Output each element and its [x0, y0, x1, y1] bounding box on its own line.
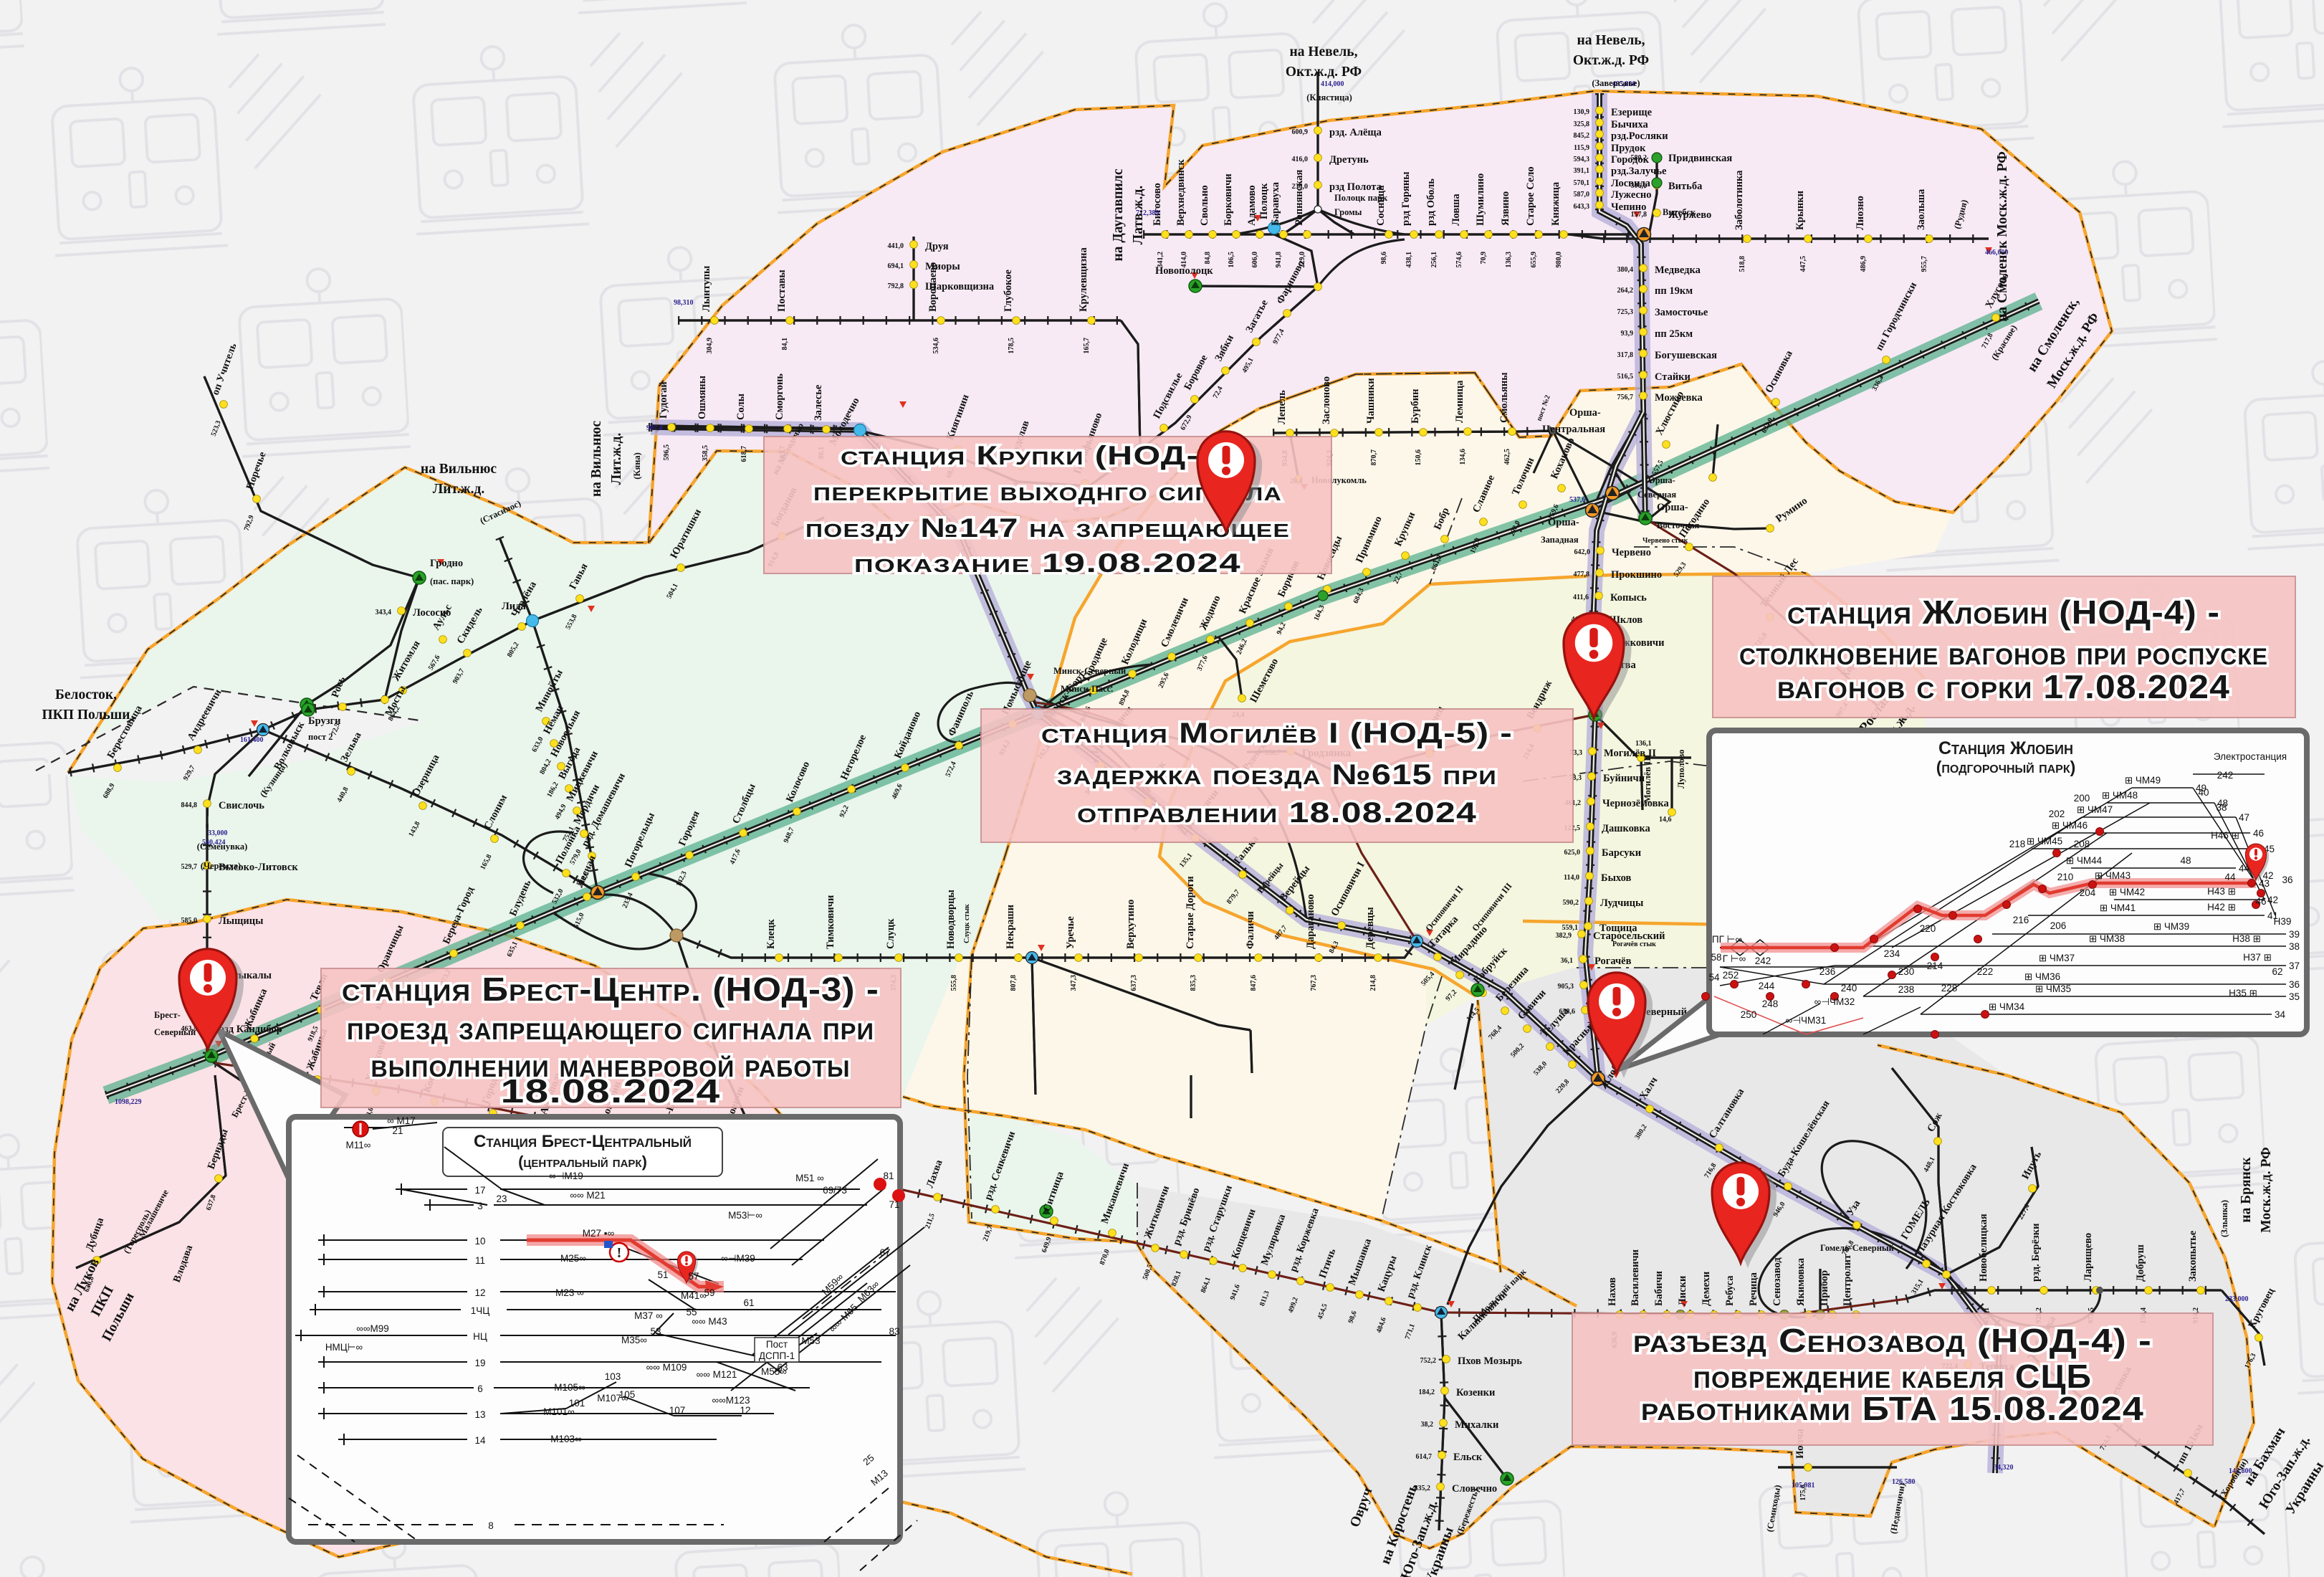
svg-text:Слуцк стык: Слуцк стык: [963, 904, 971, 943]
svg-text:Шумилино: Шумилино: [1475, 173, 1486, 226]
svg-text:Лида: Лида: [502, 601, 526, 612]
svg-text:Орша-: Орша-: [1657, 502, 1688, 513]
svg-text:М103∞: М103∞: [550, 1434, 582, 1444]
svg-text:42: 42: [2262, 870, 2273, 881]
svg-text:Н35 ⊞: Н35 ⊞: [2229, 988, 2257, 999]
svg-text:(Семенувка): (Семенувка): [197, 842, 248, 852]
svg-text:Станция Брест-Центральный: Станция Брест-Центральный: [474, 1132, 692, 1151]
svg-text:Новополоцк: Новополоцк: [1155, 265, 1213, 277]
svg-text:НЦ: НЦ: [473, 1331, 487, 1342]
svg-text:Крынки: Крынки: [1794, 191, 1806, 230]
svg-text:Орша-: Орша-: [1648, 475, 1675, 485]
svg-text:222: 222: [1977, 966, 1994, 977]
svg-text:Чепино: Чепино: [1611, 201, 1646, 213]
svg-text:136,1: 136,1: [1635, 740, 1652, 748]
svg-text:Заслоново: Заслоново: [1321, 376, 1332, 424]
svg-text:Княжица: Княжица: [1550, 181, 1562, 226]
svg-text:462,5: 462,5: [1503, 449, 1511, 465]
svg-text:Язвино: Язвино: [1500, 191, 1511, 226]
svg-text:12: 12: [740, 1405, 750, 1416]
svg-text:М105∞: М105∞: [554, 1382, 585, 1393]
svg-text:НМЦ⊢∞: НМЦ⊢∞: [325, 1342, 363, 1353]
svg-text:Сморгонь: Сморгонь: [774, 373, 785, 420]
svg-text:Червено: Червено: [1612, 547, 1651, 558]
svg-text:Прибор: Прибор: [1819, 1270, 1830, 1306]
svg-text:Козенки: Козенки: [1456, 1387, 1495, 1399]
svg-text:19: 19: [474, 1358, 485, 1368]
svg-text:33,000: 33,000: [208, 829, 228, 837]
svg-text:Н37 ⊞: Н37 ⊞: [2243, 952, 2272, 963]
svg-text:Якимовка: Якимовка: [1795, 1257, 1807, 1306]
svg-text:Верхнедвинск: Верхнедвинск: [1175, 159, 1187, 226]
svg-text:Адамово: Адамово: [1246, 185, 1258, 226]
svg-text:38: 38: [2216, 802, 2227, 813]
svg-text:Лыщицы: Лыщицы: [219, 915, 263, 927]
svg-text:Крулевщизна: Крулевщизна: [1078, 247, 1089, 312]
svg-text:работниками БТА 15.08.2024: работниками БТА 15.08.2024: [1641, 1390, 2144, 1427]
svg-text:447,5: 447,5: [1799, 256, 1807, 272]
svg-text:Старое Село: Старое Село: [1525, 166, 1536, 226]
svg-text:54: 54: [1708, 972, 1720, 983]
svg-text:ПГ ⊢∞: ПГ ⊢∞: [1712, 934, 1743, 945]
svg-text:Лужесно: Лужесно: [1611, 189, 1651, 201]
svg-text:130,9: 130,9: [1574, 108, 1590, 116]
svg-text:Бурбин: Бурбин: [1410, 389, 1421, 424]
svg-text:Заольша: Заольша: [1916, 189, 1927, 230]
svg-text:Пхов Мозырь: Пхов Мозырь: [1458, 1356, 1522, 1367]
svg-text:Лит.ж.д.: Лит.ж.д.: [433, 482, 485, 497]
svg-text:Лынтупы: Лынтупы: [701, 266, 712, 312]
svg-text:⊞ ЧМ43: ⊞ ЧМ43: [2095, 870, 2131, 881]
svg-text:Гомель-Северный: Гомель-Северный: [1820, 1243, 1894, 1253]
svg-text:101: 101: [569, 1398, 585, 1409]
svg-text:Окт.ж.д. РФ: Окт.ж.д. РФ: [1286, 65, 1362, 80]
svg-text:600,9: 600,9: [1292, 128, 1309, 136]
svg-text:44: 44: [2224, 872, 2236, 882]
svg-text:234: 234: [1884, 948, 1900, 959]
svg-text:35: 35: [2289, 991, 2300, 1002]
svg-text:38: 38: [2289, 941, 2300, 952]
svg-text:Барсуки: Барсуки: [1602, 847, 1641, 859]
svg-text:Смольяны: Смольяны: [1498, 372, 1510, 423]
svg-text:380,4: 380,4: [1617, 266, 1634, 274]
svg-text:Н42 ⊞: Н42 ⊞: [2207, 902, 2236, 913]
svg-text:М51 ∞: М51 ∞: [795, 1173, 824, 1183]
svg-text:Медведка: Медведка: [1655, 265, 1701, 276]
svg-text:Михалки: Михалки: [1455, 1419, 1498, 1431]
svg-text:905,3: 905,3: [1558, 983, 1574, 991]
svg-text:Баравуха: Баравуха: [1270, 181, 1281, 226]
svg-text:Луполово: Луполово: [1676, 750, 1686, 788]
svg-text:рзд. Берёзки: рзд. Берёзки: [2030, 1224, 2042, 1282]
svg-text:555,8: 555,8: [950, 975, 958, 991]
svg-text:Бычиха: Бычиха: [1611, 119, 1648, 130]
svg-text:570,1: 570,1: [1574, 179, 1590, 187]
svg-text:244: 244: [1759, 981, 1775, 991]
svg-text:574,6: 574,6: [1455, 252, 1463, 268]
svg-text:Орша-: Орша-: [1548, 517, 1579, 528]
svg-text:рзд.Росляки: рзд.Росляки: [1611, 130, 1668, 142]
svg-text:пост 2: пост 2: [308, 732, 333, 742]
svg-text:Окт.ж.д. РФ: Окт.ж.д. РФ: [1573, 53, 1649, 68]
svg-text:Городок: Городок: [1611, 154, 1650, 166]
svg-text:ПКП Польши: ПКП Польши: [42, 707, 130, 723]
svg-text:∞∞ М109: ∞∞ М109: [646, 1362, 687, 1373]
svg-text:67: 67: [879, 1247, 890, 1258]
svg-text:Г ⊢∞: Г ⊢∞: [1723, 953, 1746, 964]
svg-text:585,0: 585,0: [181, 917, 198, 925]
svg-text:606,0: 606,0: [1251, 252, 1259, 268]
svg-text:23: 23: [496, 1194, 507, 1204]
svg-text:643,3: 643,3: [1574, 203, 1590, 211]
svg-text:844,8: 844,8: [181, 801, 198, 809]
svg-text:Рогачёв: Рогачёв: [1594, 956, 1632, 967]
svg-text:59: 59: [704, 1287, 714, 1298]
svg-text:Электростанция: Электростанция: [2214, 751, 2287, 762]
svg-text:625,0: 625,0: [1564, 849, 1581, 857]
svg-text:230: 230: [1898, 966, 1915, 977]
svg-text:534,6: 534,6: [932, 338, 940, 354]
svg-text:⊞ ЧМ39: ⊞ ЧМ39: [2153, 921, 2189, 932]
svg-text:Шарковщизна: Шарковщизна: [925, 281, 995, 292]
svg-text:рзд Горяны: рзд Горяны: [1400, 171, 1412, 226]
svg-text:Н39: Н39: [2274, 916, 2292, 927]
svg-text:Восточная: Восточная: [1657, 520, 1700, 530]
svg-text:Прокшино: Прокшино: [1611, 569, 1662, 581]
svg-text:∞∞ М121: ∞∞ М121: [697, 1369, 737, 1380]
svg-text:58: 58: [1711, 952, 1721, 963]
svg-text:252: 252: [1723, 970, 1739, 981]
svg-text:200: 200: [2074, 793, 2090, 804]
svg-text:Глубокое: Глубокое: [1003, 269, 1014, 312]
svg-text:150,6: 150,6: [1415, 449, 1422, 466]
svg-text:46: 46: [2255, 896, 2266, 907]
svg-text:станция Крупки (НОД-1) -: станция Крупки (НОД-1) -: [841, 441, 1255, 470]
svg-text:Могилёв III: Могилёв III: [1642, 754, 1653, 803]
svg-text:3: 3: [477, 1201, 483, 1211]
svg-text:Дараганово: Дараганово: [1305, 894, 1316, 949]
svg-text:Новодворцы: Новодворцы: [945, 890, 957, 949]
svg-text:Василевичи: Василевичи: [1630, 1249, 1641, 1306]
svg-text:13: 13: [474, 1409, 485, 1420]
svg-text:Свислочь: Свислочь: [219, 800, 264, 811]
svg-text:220: 220: [1920, 923, 1936, 934]
svg-text:рзд.Залучье: рзд.Залучье: [1611, 166, 1667, 177]
svg-text:Буйничи: Буйничи: [1603, 773, 1645, 784]
svg-text:Орша-: Орша-: [1569, 407, 1601, 419]
svg-text:Северный: Северный: [154, 1027, 196, 1037]
svg-text:⊞ ЧМ42: ⊞ ЧМ42: [2109, 887, 2145, 897]
svg-text:Н38 ⊞: Н38 ⊞: [2232, 933, 2261, 944]
svg-text:34,320: 34,320: [1994, 1464, 2014, 1472]
svg-text:907,4: 907,4: [646, 424, 663, 432]
svg-text:34: 34: [2275, 1009, 2286, 1020]
svg-text:М41∞: М41∞: [681, 1290, 707, 1301]
svg-text:70,9: 70,9: [1480, 252, 1488, 265]
svg-text:242: 242: [2217, 770, 2234, 781]
svg-text:Ларищево: Ларищево: [2082, 1233, 2094, 1282]
svg-text:М37 ∞: М37 ∞: [634, 1310, 663, 1321]
svg-text:391,1: 391,1: [1574, 167, 1590, 175]
svg-text:∞∞М99: ∞∞М99: [356, 1323, 389, 1334]
svg-text:Червено стык: Червено стык: [1642, 537, 1688, 545]
svg-text:М53⊢∞: М53⊢∞: [728, 1210, 762, 1221]
svg-text:⊞ ЧМ44: ⊞ ЧМ44: [2066, 855, 2103, 866]
svg-text:590,2: 590,2: [1563, 899, 1579, 907]
svg-text:Лудчицы: Лудчицы: [1600, 897, 1643, 909]
svg-text:Друя: Друя: [925, 241, 949, 252]
svg-text:587,0: 587,0: [1574, 191, 1590, 199]
svg-text:Латв.ж.д.: Латв.ж.д.: [1131, 186, 1146, 245]
svg-text:537,6: 537,6: [1569, 496, 1586, 504]
svg-text:36: 36: [2289, 979, 2300, 990]
svg-text:Центролит: Центролит: [1842, 1254, 1853, 1306]
svg-text:Закопытье: Закопытье: [2187, 1230, 2199, 1282]
svg-text:845,2: 845,2: [1574, 132, 1590, 140]
svg-text:325,8: 325,8: [1574, 120, 1590, 128]
svg-text:233,000: 233,000: [2225, 1295, 2249, 1303]
svg-text:Новобелицкая: Новобелицкая: [1978, 1214, 1989, 1282]
svg-text:242: 242: [1755, 956, 1771, 966]
svg-text:(центральный парк): (центральный парк): [518, 1153, 647, 1171]
svg-text:ДСПП-1: ДСПП-1: [759, 1350, 795, 1361]
svg-text:Пост: Пост: [766, 1339, 788, 1350]
svg-text:⊞ ЧМ41: ⊞ ЧМ41: [2100, 902, 2136, 913]
svg-text:37: 37: [2289, 961, 2300, 971]
svg-text:∞⊣ЧМ32: ∞⊣ЧМ32: [1814, 996, 1855, 1007]
svg-text:161,400: 161,400: [240, 736, 264, 744]
svg-text:618,7: 618,7: [740, 446, 748, 462]
svg-text:317,8: 317,8: [1617, 351, 1634, 359]
svg-text:725,3: 725,3: [1617, 308, 1634, 316]
svg-text:17: 17: [474, 1185, 485, 1196]
svg-text:411,6: 411,6: [1573, 594, 1589, 601]
svg-text:238: 238: [1898, 984, 1915, 995]
svg-text:184,2: 184,2: [1419, 1388, 1435, 1396]
svg-text:∞∞М123: ∞∞М123: [712, 1395, 750, 1406]
svg-text:438,1: 438,1: [1405, 252, 1413, 268]
svg-text:53: 53: [650, 1326, 661, 1337]
svg-text:на Невель,: на Невель,: [1290, 44, 1358, 59]
svg-text:46: 46: [2253, 828, 2264, 839]
svg-text:178,5: 178,5: [1008, 338, 1015, 354]
svg-text:756,7: 756,7: [1617, 394, 1634, 401]
svg-text:358,5: 358,5: [702, 445, 709, 462]
svg-text:18.08.2024: 18.08.2024: [501, 1072, 721, 1110]
svg-text:Нахов: Нахов: [1607, 1277, 1618, 1306]
svg-text:Сенозавод: Сенозавод: [1771, 1257, 1783, 1306]
svg-text:на Вильнюс: на Вильнюс: [589, 421, 604, 497]
svg-text:93,9: 93,9: [1621, 330, 1634, 338]
svg-text:⊞ ЧМ36: ⊞ ЧМ36: [2024, 971, 2060, 982]
svg-text:Витебск: Витебск: [1663, 207, 1696, 217]
svg-text:М25∞: М25∞: [560, 1253, 586, 1264]
svg-text:Демехи: Демехи: [1701, 1272, 1712, 1306]
svg-text:(Злынка): (Злынка): [2219, 1200, 2229, 1237]
svg-text:∞∞ М43: ∞∞ М43: [692, 1316, 727, 1327]
svg-text:Уречье: Уречье: [1065, 916, 1076, 949]
svg-text:40: 40: [2198, 787, 2209, 798]
svg-text:Слуцк: Слуцк: [885, 918, 896, 949]
svg-text:задержка поезда №615 при: задержка поезда №615 при: [1057, 759, 1497, 791]
svg-text:248: 248: [1762, 999, 1779, 1009]
svg-text:Замосточье: Замосточье: [1655, 307, 1708, 318]
svg-text:Северная: Северная: [1637, 490, 1676, 500]
svg-text:⊞ ЧМ47: ⊞ ЧМ47: [2077, 804, 2113, 815]
svg-text:57: 57: [688, 1271, 699, 1282]
svg-text:214,8: 214,8: [1369, 975, 1377, 991]
svg-text:47: 47: [2239, 812, 2249, 823]
svg-text:пп 19км: пп 19км: [1655, 285, 1693, 297]
svg-text:отправлении 18.08.2024: отправлении 18.08.2024: [1077, 797, 1477, 829]
svg-text:Тимковичи: Тимковичи: [825, 895, 836, 949]
svg-text:Деревцы: Деревцы: [1364, 907, 1376, 949]
svg-text:84,1: 84,1: [781, 338, 789, 351]
svg-text:Борковичи: Борковичи: [1223, 173, 1234, 226]
svg-text:Солы: Солы: [735, 394, 747, 420]
svg-text:Миоры: Миоры: [925, 261, 960, 272]
svg-text:210: 210: [2057, 872, 2074, 882]
svg-text:136,3: 136,3: [1505, 252, 1513, 268]
svg-text:214: 214: [1927, 961, 1943, 971]
svg-text:Лиозно: Лиозно: [1855, 196, 1866, 230]
svg-text:216: 216: [2013, 915, 2029, 925]
svg-text:103: 103: [605, 1371, 621, 1382]
svg-text:Чернозёмовка: Чернозёмовка: [1602, 798, 1670, 809]
svg-text:Старые Дороги: Старые Дороги: [1185, 876, 1196, 949]
svg-text:Богушевская: Богушевская: [1655, 350, 1717, 361]
svg-text:⊞ ЧМ46: ⊞ ЧМ46: [2052, 820, 2088, 831]
svg-text:Свольно: Свольно: [1199, 185, 1210, 226]
svg-text:637,3: 637,3: [1130, 975, 1138, 991]
svg-text:204: 204: [2080, 887, 2096, 898]
svg-text:518,8: 518,8: [1739, 256, 1746, 272]
svg-text:62: 62: [2272, 966, 2282, 977]
svg-text:Лосвида: Лосвида: [1611, 178, 1651, 189]
svg-text:792,8: 792,8: [888, 282, 904, 290]
svg-text:Моск.ж.д. РФ: Моск.ж.д. РФ: [2259, 1147, 2274, 1233]
svg-text:106,5: 106,5: [1228, 252, 1235, 268]
svg-text:14: 14: [474, 1435, 486, 1446]
svg-text:264,2: 264,2: [1617, 287, 1634, 295]
svg-text:71: 71: [889, 1199, 899, 1210]
svg-text:36,1: 36,1: [1561, 957, 1574, 965]
svg-text:Лемница: Лемница: [1454, 380, 1465, 423]
svg-text:М11∞: М11∞: [346, 1140, 371, 1150]
svg-text:⊞ ЧМ45: ⊞ ЧМ45: [2027, 836, 2062, 847]
svg-text:Полоцк: Полоцк: [1258, 183, 1270, 219]
svg-text:414,000: 414,000: [1321, 80, 1344, 88]
svg-text:Езерище: Езерище: [1611, 107, 1653, 118]
svg-text:529,7: 529,7: [181, 863, 198, 871]
svg-text:М35∞: М35∞: [621, 1335, 647, 1345]
svg-text:∞∞ М21: ∞∞ М21: [570, 1190, 605, 1201]
svg-text:1ЧЦ: 1ЧЦ: [471, 1305, 490, 1316]
svg-text:станция Могилёв I (НОД-5) -: станция Могилёв I (НОД-5) -: [1041, 718, 1513, 749]
svg-text:на Смоленск Моск.ж.д. РФ: на Смоленск Моск.ж.д. РФ: [1995, 151, 2010, 322]
svg-text:165,7: 165,7: [1083, 338, 1091, 354]
svg-text:416,0: 416,0: [1292, 156, 1309, 163]
svg-text:98,310: 98,310: [674, 299, 694, 307]
svg-text:рзд Оболь: рзд Оболь: [1425, 178, 1437, 226]
svg-text:!: !: [617, 1245, 622, 1261]
svg-text:559,1: 559,1: [1562, 924, 1579, 932]
svg-text:рзд. Алёща: рзд. Алёща: [1329, 127, 1382, 138]
svg-text:Бигосово: Бигосово: [1152, 183, 1163, 226]
svg-text:208: 208: [2074, 839, 2090, 849]
svg-text:Н43 ⊞: Н43 ⊞: [2207, 886, 2236, 897]
svg-text:6: 6: [477, 1383, 483, 1394]
svg-text:250: 250: [1741, 1009, 1757, 1020]
svg-text:51: 51: [657, 1269, 668, 1280]
svg-text:∞⊣М39: ∞⊣М39: [721, 1253, 755, 1264]
svg-text:показание 19.08.2024: показание 19.08.2024: [854, 548, 1241, 578]
svg-text:Копысь: Копысь: [1610, 592, 1647, 604]
svg-text:236,0: 236,0: [1292, 183, 1309, 191]
svg-text:Минск-Пасс.: Минск-Пасс.: [1061, 684, 1113, 694]
svg-text:поезду №147 на запрещающее: поезду №147 на запрещающее: [805, 513, 1290, 543]
svg-text:Дашковка: Дашковка: [1602, 823, 1650, 834]
svg-text:807,8: 807,8: [1010, 975, 1018, 991]
svg-text:Прудок: Прудок: [1611, 143, 1646, 154]
svg-text:343,4: 343,4: [376, 609, 392, 616]
svg-text:8: 8: [488, 1520, 494, 1531]
svg-text:станция Жлобин (НОД-4) -: станция Жлобин (НОД-4) -: [1787, 594, 2220, 631]
svg-text:516,5: 516,5: [1617, 373, 1634, 381]
svg-text:83: 83: [889, 1326, 899, 1337]
svg-text:48: 48: [2180, 855, 2191, 866]
svg-text:Клецк: Клецк: [765, 919, 777, 949]
svg-text:767,3: 767,3: [1310, 975, 1318, 991]
svg-text:Центральная: Центральная: [1542, 424, 1605, 435]
svg-text:Речица: Речица: [1748, 1272, 1759, 1306]
svg-text:Витьба: Витьба: [1668, 181, 1703, 192]
svg-text:∞⊣М19: ∞⊣М19: [549, 1171, 583, 1181]
svg-text:12: 12: [474, 1287, 485, 1298]
svg-text:Ловша: Ловша: [1450, 194, 1462, 226]
svg-text:941,8: 941,8: [1275, 252, 1283, 268]
svg-text:107: 107: [669, 1405, 686, 1416]
svg-text:Лепель: Лепель: [1276, 390, 1288, 424]
svg-text:642,0: 642,0: [1574, 548, 1591, 556]
svg-text:240: 240: [1841, 983, 1857, 994]
svg-text:⊞ ЧМ37: ⊞ ЧМ37: [2039, 953, 2075, 963]
svg-text:596,5: 596,5: [663, 444, 671, 461]
svg-text:⊞ ЧМ34: ⊞ ЧМ34: [1989, 1001, 2025, 1012]
svg-text:694,1: 694,1: [888, 262, 904, 270]
svg-text:36: 36: [2282, 875, 2292, 885]
svg-text:Западная: Западная: [1541, 535, 1579, 545]
svg-text:Ельск: Ельск: [1453, 1452, 1483, 1463]
svg-text:станция Брест-Центр. (НОД-3) -: станция Брест-Центр. (НОД-3) -: [342, 971, 879, 1008]
svg-text:Заболотинка: Заболотинка: [1734, 170, 1745, 230]
svg-text:134,6: 134,6: [1459, 449, 1467, 465]
svg-text:218: 218: [2009, 839, 2026, 849]
svg-text:рзд Полота: рзд Полота: [1329, 181, 1382, 193]
svg-text:835,3: 835,3: [1190, 975, 1197, 991]
svg-text:на Даугавпилс: на Даугавпилс: [1111, 168, 1126, 261]
svg-text:980,0: 980,0: [1555, 252, 1563, 268]
svg-text:441,0: 441,0: [888, 242, 904, 250]
svg-text:14,6: 14,6: [1659, 816, 1672, 824]
svg-text:Н46 ⊞: Н46 ⊞: [2211, 830, 2239, 841]
svg-text:Полоцк парк: Полоцк парк: [1334, 193, 1388, 203]
svg-text:(Кяна): (Кяна): [632, 452, 642, 480]
svg-text:Быхов: Быхов: [1601, 872, 1631, 884]
svg-text:1098,229: 1098,229: [115, 1098, 142, 1106]
svg-text:Гродно: Гродно: [430, 558, 463, 569]
svg-text:Белосток,: Белосток,: [55, 687, 117, 702]
